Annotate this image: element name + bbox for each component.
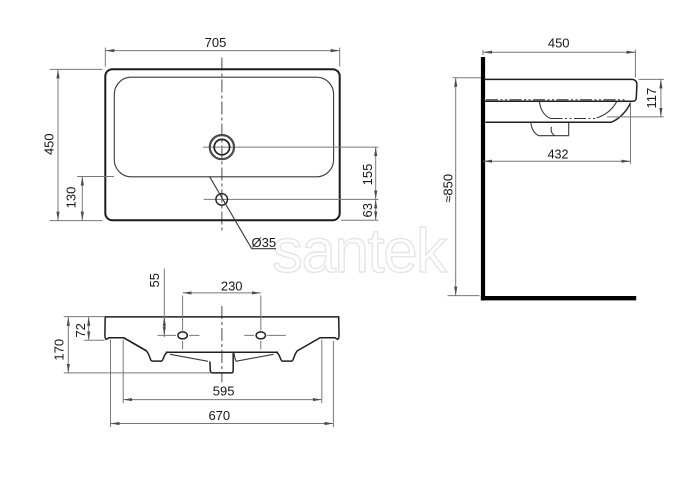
svg-text:670: 670 — [208, 408, 230, 423]
svg-text:450: 450 — [41, 133, 56, 155]
svg-text:63: 63 — [360, 203, 375, 217]
svg-text:705: 705 — [205, 35, 227, 50]
svg-text:432: 432 — [548, 147, 569, 161]
svg-text:55: 55 — [147, 273, 162, 287]
svg-text:230: 230 — [221, 278, 243, 293]
svg-text:Ø35: Ø35 — [252, 235, 277, 250]
svg-text:450: 450 — [548, 36, 570, 51]
svg-text:170: 170 — [52, 339, 67, 361]
svg-text:155: 155 — [360, 164, 375, 186]
svg-text:72: 72 — [73, 323, 88, 337]
svg-text:117: 117 — [644, 88, 659, 109]
svg-text:130: 130 — [64, 187, 79, 209]
svg-text:santek: santek — [272, 217, 448, 286]
svg-text:≈850: ≈850 — [440, 174, 455, 203]
svg-text:595: 595 — [213, 383, 235, 398]
